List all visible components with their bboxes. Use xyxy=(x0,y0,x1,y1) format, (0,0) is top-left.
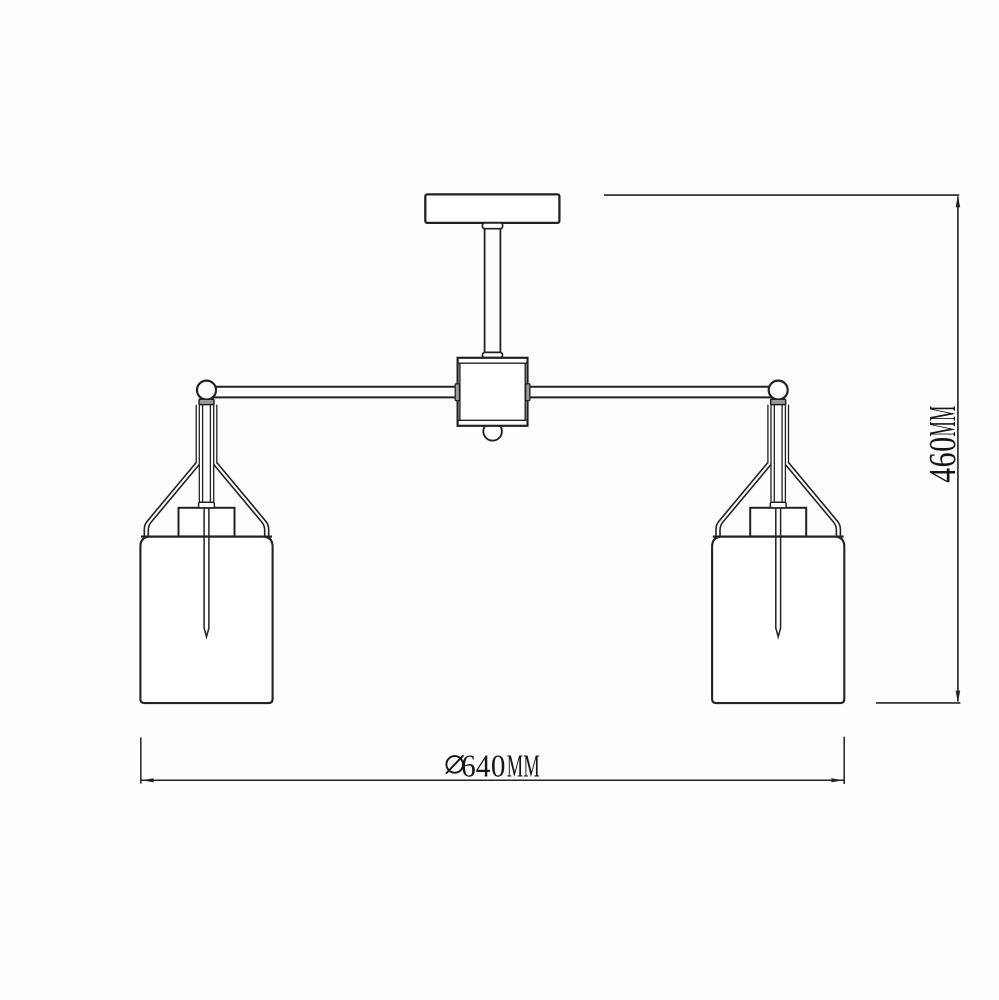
svg-text:0: 0 xyxy=(923,437,964,452)
svg-text:4: 4 xyxy=(476,748,491,783)
svg-text:M: M xyxy=(523,748,539,783)
svg-text:4: 4 xyxy=(923,468,964,483)
svg-text:M: M xyxy=(507,748,523,783)
svg-text:6: 6 xyxy=(461,748,476,783)
svg-text:6: 6 xyxy=(923,452,964,467)
svg-text:M: M xyxy=(923,406,964,421)
svg-text:0: 0 xyxy=(491,748,506,783)
svg-text:M: M xyxy=(923,421,964,436)
